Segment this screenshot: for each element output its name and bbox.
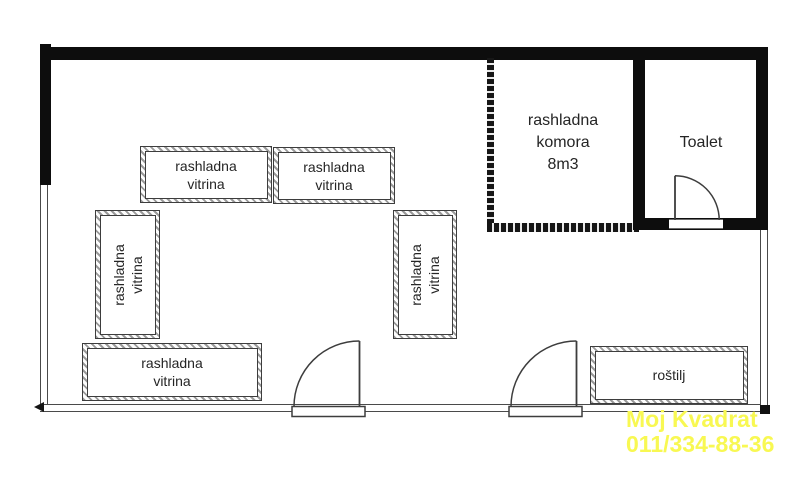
wall-left-window bbox=[40, 185, 48, 412]
komora-label: rashladna komora 8m3 bbox=[490, 110, 636, 176]
toalet-wall-right bbox=[756, 47, 768, 230]
wall-top bbox=[40, 47, 768, 60]
display-case-top-right: rashladnavitrina bbox=[273, 147, 395, 204]
entrance-door-left bbox=[291, 340, 366, 418]
display-case-middle-vertical: rashladnavitrina bbox=[393, 210, 457, 339]
display-case-label: rashladnavitrina bbox=[110, 244, 146, 306]
display-case-top-left: rashladnavitrina bbox=[140, 146, 272, 203]
toalet-door bbox=[668, 175, 726, 231]
display-case-label: rashladnavitrina bbox=[303, 158, 365, 194]
watermark-phone: 011/334-88-36 bbox=[626, 432, 796, 457]
toalet-label-text: Toalet bbox=[680, 134, 723, 151]
corner-arrow-mark bbox=[34, 402, 44, 412]
grill-label: roštilj bbox=[653, 366, 686, 384]
display-case-label: rashladnavitrina bbox=[407, 244, 443, 306]
komora-wall-bottom bbox=[487, 223, 639, 232]
wall-left-thick bbox=[40, 44, 51, 185]
display-case-left-vertical: rashladnavitrina bbox=[95, 210, 160, 339]
komora-label-line2: komora bbox=[490, 132, 636, 154]
display-case-bottom-left: rashladnavitrina bbox=[82, 343, 262, 401]
entrance-door-right bbox=[508, 340, 583, 418]
watermark: Moj Kvadrat 011/334-88-36 bbox=[626, 407, 796, 457]
komora-label-line1: rashladna bbox=[490, 110, 636, 132]
floor-plan: rashladna komora 8m3 Toalet rashladnavit… bbox=[0, 0, 800, 478]
watermark-brand: Moj Kvadrat bbox=[626, 407, 796, 432]
display-case-label: rashladnavitrina bbox=[175, 157, 237, 193]
komora-label-line3: 8m3 bbox=[490, 154, 636, 176]
toalet-label: Toalet bbox=[645, 132, 757, 154]
wall-right-window bbox=[760, 228, 768, 412]
display-case-label: rashladnavitrina bbox=[141, 354, 203, 390]
grill-counter: roštilj bbox=[590, 346, 748, 404]
